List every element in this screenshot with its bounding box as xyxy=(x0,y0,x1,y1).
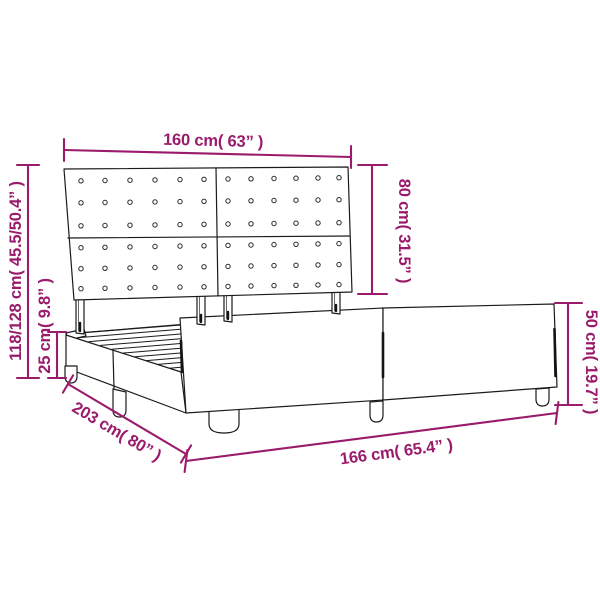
tufting-button xyxy=(294,242,298,246)
headboard-panel xyxy=(64,167,352,300)
tufting-button xyxy=(153,265,157,269)
tufting-button xyxy=(294,283,298,287)
tufting-button xyxy=(103,178,107,182)
tufting-button xyxy=(272,283,276,287)
dim-footboard-height xyxy=(555,303,582,405)
tufting-button xyxy=(316,263,320,267)
tufting-button xyxy=(202,177,206,181)
tufting-button xyxy=(337,282,341,286)
tufting-button xyxy=(79,224,83,228)
tufting-button xyxy=(226,199,230,203)
tufting-button xyxy=(249,199,253,203)
diagram-canvas: 160 cm( 63” ) 80 cm( 31.5” ) 118/128 cm(… xyxy=(0,0,600,600)
leg-front-right xyxy=(536,388,549,406)
tufting-button xyxy=(316,198,320,202)
tufting-button xyxy=(103,266,107,270)
tufting-button xyxy=(226,243,230,247)
tufting-button xyxy=(249,243,253,247)
tufting-button xyxy=(178,265,182,269)
dim-frame-width-label: 166 cm( 65.4” ) xyxy=(339,436,454,469)
tufting-button xyxy=(128,200,132,204)
tufting-button xyxy=(178,222,182,226)
dim-headboard-height xyxy=(358,165,387,294)
tufting-button xyxy=(202,199,206,203)
tufting-button xyxy=(226,222,230,226)
tufting-button xyxy=(249,177,253,181)
dim-footboard-height-label: 50 cm( 19.7” ) xyxy=(582,310,600,415)
tufting-button xyxy=(153,223,157,227)
dim-side-rail-height-label: 25 cm( 9.8” ) xyxy=(36,278,54,374)
tufting-button xyxy=(79,246,83,250)
tufting-button xyxy=(103,223,107,227)
tufting-button xyxy=(226,284,230,288)
leg-front-middle xyxy=(370,401,383,422)
tufting-button xyxy=(294,263,298,267)
tufting-button xyxy=(249,264,253,268)
tufting-button xyxy=(226,264,230,268)
tufting-button xyxy=(249,222,253,226)
tufting-button xyxy=(337,221,341,225)
bed-dimension-diagram: 160 cm( 63” ) 80 cm( 31.5” ) 118/128 cm(… xyxy=(0,0,600,600)
tufting-button xyxy=(202,265,206,269)
tufting-button xyxy=(128,223,132,227)
tufting-button xyxy=(178,285,182,289)
tufting-button xyxy=(272,221,276,225)
dim-headboard-height-label: 80 cm( 31.5” ) xyxy=(395,179,413,284)
tufting-button xyxy=(153,244,157,248)
tufting-button xyxy=(178,244,182,248)
tufting-button xyxy=(128,245,132,249)
tufting-button xyxy=(272,176,276,180)
tufting-button xyxy=(272,242,276,246)
tufting-button xyxy=(226,177,230,181)
tufting-button xyxy=(153,285,157,289)
tufting-button xyxy=(337,198,341,202)
tufting-button xyxy=(294,176,298,180)
tufting-button xyxy=(178,177,182,181)
tufting-button xyxy=(153,178,157,182)
tufting-button xyxy=(79,287,83,291)
tufting-button xyxy=(103,200,107,204)
tufting-button xyxy=(153,200,157,204)
dim-headboard-width-label: 160 cm( 63” ) xyxy=(163,131,264,152)
tufting-button xyxy=(103,245,107,249)
tufting-button xyxy=(316,242,320,246)
tufting-button xyxy=(316,176,320,180)
tufting-button xyxy=(294,221,298,225)
tufting-button xyxy=(202,285,206,289)
tufting-button xyxy=(337,176,341,180)
tufting-button xyxy=(79,267,83,271)
tufting-button xyxy=(128,286,132,290)
tufting-button xyxy=(249,284,253,288)
tufting-button xyxy=(128,178,132,182)
tufting-button xyxy=(272,263,276,267)
tufting-button xyxy=(337,262,341,266)
tufting-button xyxy=(316,221,320,225)
tufting-button xyxy=(202,244,206,248)
tufting-button xyxy=(128,266,132,270)
tufting-button xyxy=(178,199,182,203)
tufting-button xyxy=(272,198,276,202)
headboard xyxy=(64,167,352,300)
tufting-button xyxy=(79,201,83,205)
tufting-button xyxy=(294,198,298,202)
tufting-button xyxy=(103,286,107,290)
tufting-button xyxy=(316,283,320,287)
dim-total-height-label: 118/128 cm( 45.5/50.4” ) xyxy=(7,181,25,361)
frame-front-panel xyxy=(180,308,383,413)
bed-frame-drawing xyxy=(64,167,557,433)
tufting-button xyxy=(79,179,83,183)
tufting-button xyxy=(337,241,341,245)
frame-right-panel xyxy=(383,304,557,400)
tufting-button xyxy=(202,222,206,226)
